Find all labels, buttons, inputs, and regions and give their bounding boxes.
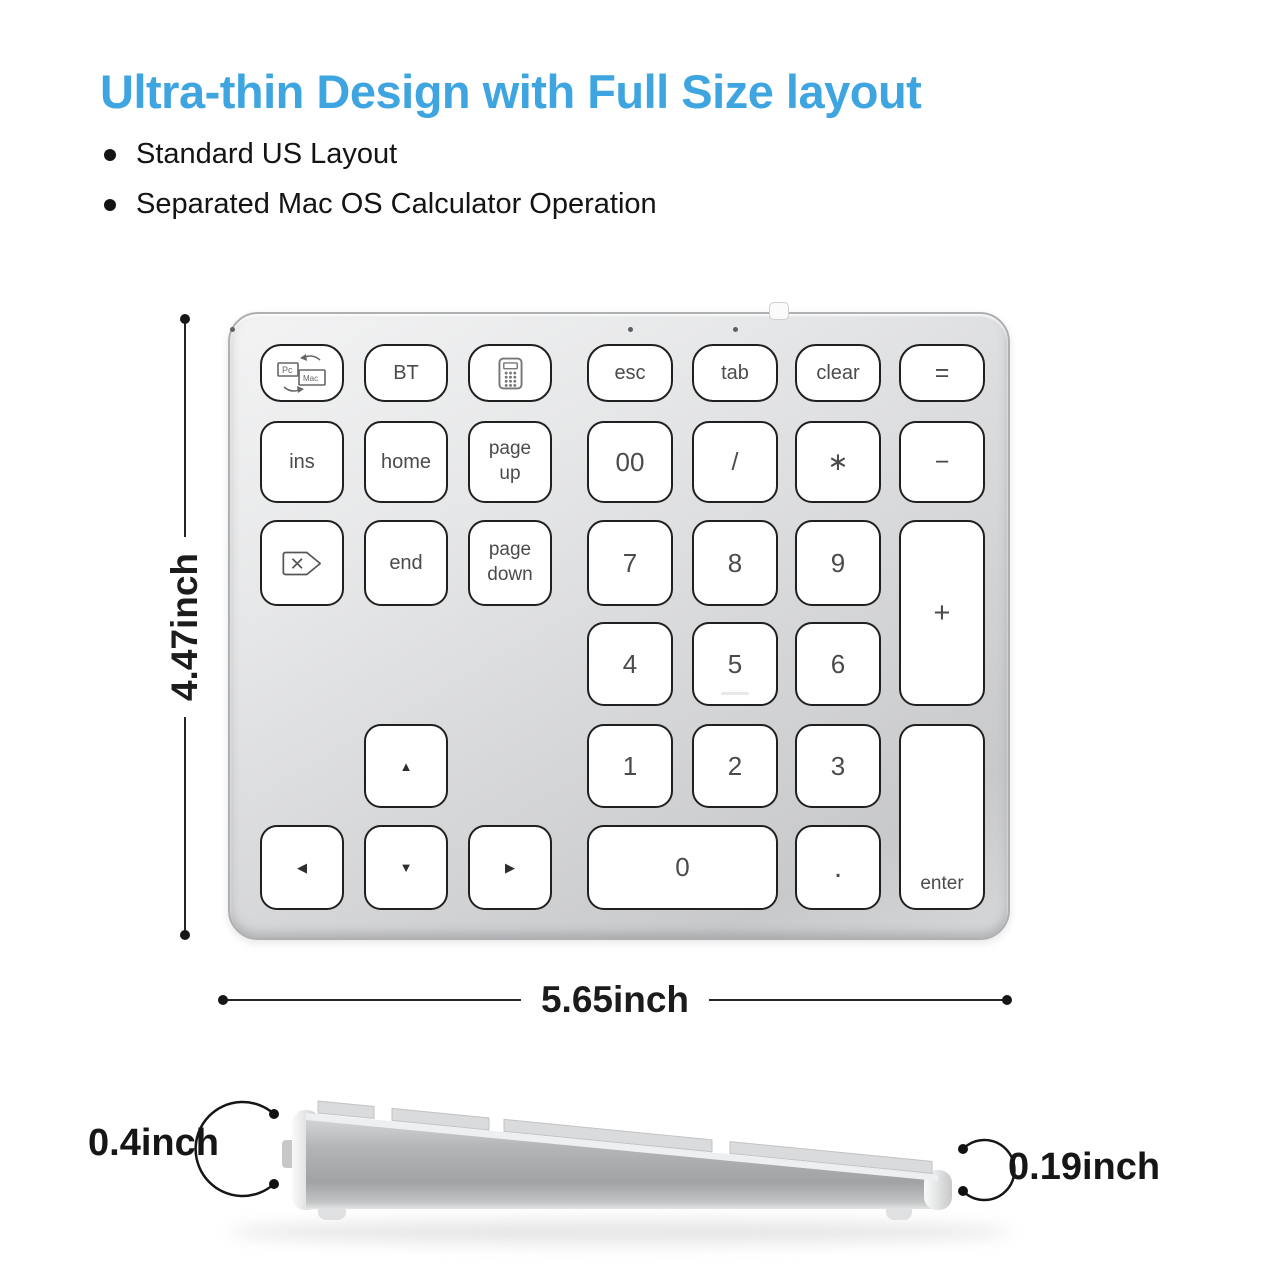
key-divide: /: [692, 421, 778, 503]
key-1: 1: [587, 724, 673, 808]
page-title: Ultra-thin Design with Full Size layout: [100, 64, 921, 119]
key-4: 4: [587, 622, 673, 706]
bullet-dot-icon: [104, 149, 116, 161]
key-home: home: [364, 421, 448, 503]
delete-key-icon: [280, 549, 324, 578]
width-dimension-label: 5.65inch: [521, 979, 709, 1021]
feature-list: Standard US Layout Separated Mac OS Calc…: [104, 138, 657, 238]
side-profile-body: [282, 1101, 952, 1220]
key-delete-forward: [260, 520, 344, 606]
key-3: 3: [795, 724, 881, 808]
key-2: 2: [692, 724, 778, 808]
key-6: 6: [795, 622, 881, 706]
side-profile-shadow: [228, 1220, 1012, 1244]
key-0: 0: [587, 825, 778, 910]
key-clear: clear: [795, 344, 881, 402]
key-double-zero: 00: [587, 421, 673, 503]
key-pc-mac-switch: PcMac: [260, 344, 344, 402]
key-esc: esc: [587, 344, 673, 402]
key-tab: tab: [692, 344, 778, 402]
key-page-down: page down: [468, 520, 552, 606]
bullet-dot-icon: [104, 199, 116, 211]
height-dimension-label: 4.47inch: [164, 537, 206, 717]
key-arrow-left: ◀: [260, 825, 344, 910]
status-led: [230, 327, 235, 332]
usb-connector-tab: [769, 302, 789, 320]
svg-text:Mac: Mac: [303, 374, 318, 383]
key-multiply: ∗: [795, 421, 881, 503]
calculator-icon: [498, 357, 523, 390]
key-page-up: page up: [468, 421, 552, 503]
key-9: 9: [795, 520, 881, 606]
product-feature-panel: Ultra-thin Design with Full Size layout …: [0, 0, 1280, 1280]
rear-thickness-label: 0.19inch: [1008, 1146, 1160, 1189]
width-dimension-line: 5.65inch: [222, 999, 1008, 1001]
key-7: 7: [587, 520, 673, 606]
keypad-top-view: PcMacBTesctabclear=inshomepage up00/∗−en…: [228, 312, 1010, 940]
key-equals: =: [899, 344, 985, 402]
key-decimal: .: [795, 825, 881, 910]
feature-bullet: Separated Mac OS Calculator Operation: [104, 188, 657, 221]
feature-bullet-text: Standard US Layout: [136, 138, 397, 171]
key-minus: −: [899, 421, 985, 503]
svg-text:Pc: Pc: [282, 365, 293, 375]
key-ins: ins: [260, 421, 344, 503]
key-enter: enter: [899, 724, 985, 910]
key-arrow-right: ▶: [468, 825, 552, 910]
pc-mac-switch-icon: PcMac: [276, 352, 328, 394]
front-thickness-label: 0.4inch: [88, 1122, 219, 1165]
key-8: 8: [692, 520, 778, 606]
feature-bullet-text: Separated Mac OS Calculator Operation: [136, 188, 657, 221]
key-end: end: [364, 520, 448, 606]
height-dimension-line: 4.47inch: [184, 318, 186, 936]
home-bump: [721, 692, 749, 695]
feature-bullet: Standard US Layout: [104, 138, 657, 171]
key-5: 5: [692, 622, 778, 706]
key-arrow-up: ▲: [364, 724, 448, 808]
key-plus: +: [899, 520, 985, 706]
key-arrow-down: ▼: [364, 825, 448, 910]
key-calculator: [468, 344, 552, 402]
status-led: [733, 327, 738, 332]
status-led: [628, 327, 633, 332]
key-bt: BT: [364, 344, 448, 402]
